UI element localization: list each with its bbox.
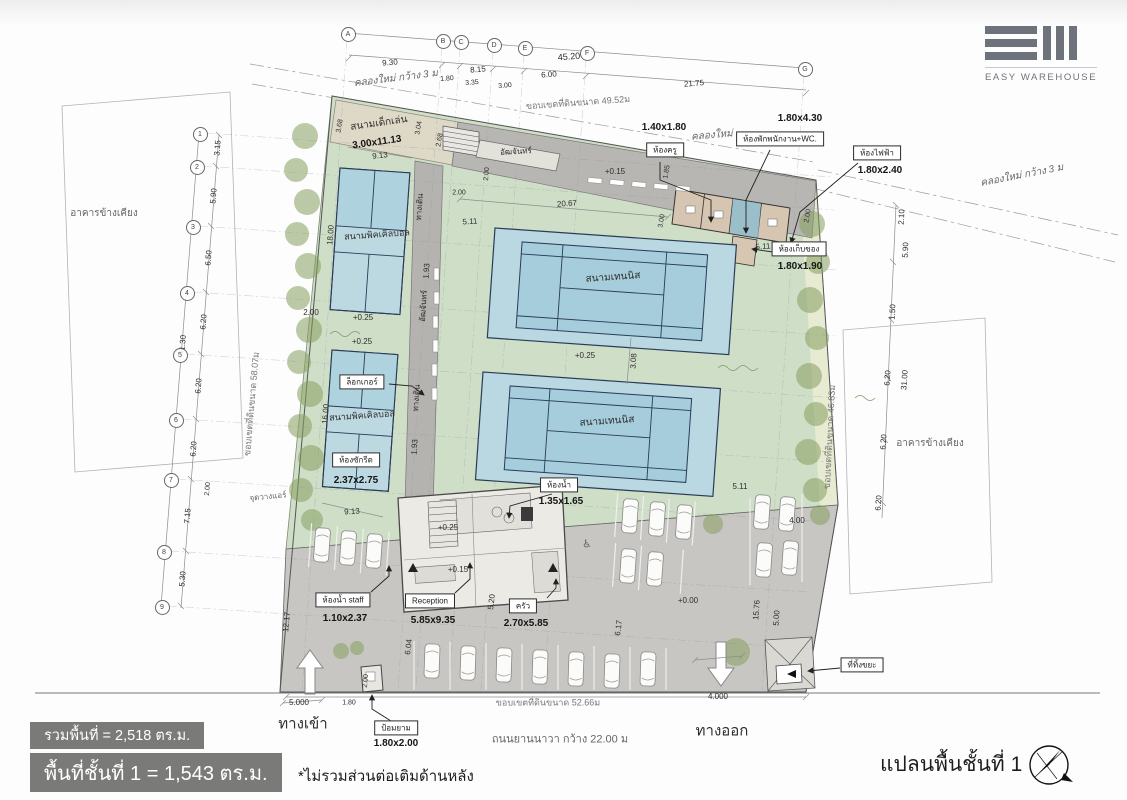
callout-trash_area: ที่ทิ้งขยะ — [841, 657, 884, 672]
label-dimensions-left-7: 5.30 — [178, 571, 187, 587]
label-dimensions-court-7: 2.00 — [303, 309, 319, 317]
label-site-grandstand: อัฒจันทร์ — [500, 147, 532, 157]
grid-bubble-col-1: B — [436, 34, 451, 49]
north-arrow-icon — [1023, 738, 1079, 794]
label-dimensions-parking-7: 4.000 — [708, 693, 728, 701]
label-dimensions-top_sub-2: 3.00 — [498, 82, 512, 90]
callout-electrical_room: ห้องไฟฟ้า — [853, 145, 901, 160]
label-dimensions-court-2: 3.08 — [629, 353, 638, 369]
label-callouts-toilet-size: 1.35x1.65 — [539, 497, 584, 507]
easy-warehouse-logo: EASY WAREHOUSE — [985, 26, 1097, 83]
label-site-neighbor_left: อาคารข้างเคียง — [70, 209, 137, 219]
label-dimensions-top_overall: 45.20 — [557, 52, 580, 63]
callout-teacher_room: ห้องครู — [646, 142, 684, 157]
label-levels-p25: +0.25 — [353, 314, 373, 322]
label-dimensions-right_overall: 31.00 — [900, 370, 909, 391]
label-dimensions-court-7: 2.00 — [483, 167, 491, 181]
label-dimensions-parking-5: 5.00 — [772, 610, 781, 626]
grid-bubble-row-7: 8 — [157, 545, 172, 560]
label-callouts-electrical_room-size: 1.80x2.40 — [858, 166, 903, 176]
label-dimensions-court-6: 16.00 — [321, 404, 330, 425]
label-dimensions-left-3: 6.20 — [199, 314, 208, 330]
label-dimensions-parking-4: 15.76 — [752, 600, 761, 621]
site-plan-drawing — [0, 0, 1127, 800]
label-dimensions-court-7: 2.00 — [452, 190, 466, 197]
label-callouts-kitchen-size: 2.70x5.85 — [504, 619, 549, 629]
grid-bubble-row-1: 2 — [190, 160, 205, 175]
grid-bubble-col-4: E — [518, 41, 533, 56]
label-dimensions-parking-9: 2.00 — [204, 482, 212, 496]
callout-storage_room: ห้องเก็บของ — [772, 241, 827, 256]
label-dimensions-top-0: 9.30 — [382, 58, 398, 67]
grid-bubble-col-5: F — [580, 46, 595, 61]
exclusion-note: *ไม่รวมส่วนต่อเติมด้านหลัง — [298, 764, 474, 788]
label-levels-p15: +0.15 — [448, 566, 468, 574]
label-callouts-reception-size: 5.85x9.35 — [411, 616, 456, 626]
label-dimensions-court-1: 5.11 — [755, 242, 771, 251]
label-callouts-storage_room-size: 1.80x1.90 — [778, 262, 823, 272]
label-callouts-staff_toilet-size: 1.10x2.37 — [323, 614, 368, 624]
label-dimensions-top-3: 21.75 — [684, 79, 705, 89]
callout-laundry_room: ห้องซักรีด — [332, 452, 380, 467]
label-dimensions-top_sub-0: 1.80 — [440, 75, 454, 83]
tennis-court-1 — [487, 228, 736, 355]
floor1-area-badge: พื้นที่ชั้นที่ 1 = 1,543 ตร.ม. — [30, 753, 282, 792]
label-dimensions-right-2: 1.50 — [889, 304, 898, 320]
grid-bubble-col-3: D — [487, 38, 502, 53]
grid-bubble-row-4: 5 — [173, 348, 188, 363]
label-site-entrance: ทางเข้า — [278, 717, 327, 732]
grid-bubble-row-8: 9 — [155, 600, 170, 615]
label-dimensions-court-5: 18.00 — [326, 225, 335, 246]
label-dimensions-right-3: 6.20 — [883, 370, 892, 386]
label-callouts-laundry_room-size: 2.37x2.75 — [334, 476, 379, 486]
pickleball-court-1 — [330, 168, 410, 315]
label-dimensions-court-3: 1.93 — [410, 439, 419, 455]
brand-name: EASY WAREHOUSE — [985, 67, 1097, 83]
grid-bubble-col-6: G — [798, 62, 813, 77]
grid-bubble-row-5: 6 — [169, 413, 184, 428]
label-site-neighbor_right: อาคารข้างเคียง — [896, 439, 963, 449]
label-dimensions-court-4: 9.13 — [372, 151, 388, 161]
callout-reception: Reception — [405, 593, 455, 608]
label-site-boundary_bottom: ขอบเขตที่ดินขนาด 52.66ม — [496, 699, 600, 708]
label-dimensions-right-6: 4.00 — [789, 517, 805, 525]
label-dimensions-right-4: 6.20 — [879, 434, 888, 450]
label-dimensions-left-5: 6.20 — [189, 441, 198, 457]
callout-kitchen: ครัว — [509, 598, 537, 613]
grid-bubble-row-6: 7 — [164, 473, 179, 488]
easy-warehouse-logo-mark-icon — [985, 26, 1097, 60]
callout-staff_toilet: ห้องน้ำ staff — [315, 592, 370, 607]
label-levels-p25: +0.25 — [575, 352, 595, 360]
label-dimensions-court-0: 20.67 — [557, 199, 578, 208]
label-callouts-guard_post-size: 1.80x2.00 — [374, 739, 419, 749]
grid-bubble-row-3: 4 — [180, 286, 195, 301]
label-dimensions-right-1: 5.90 — [902, 242, 911, 258]
label-dimensions-left-4: 6.20 — [194, 378, 203, 394]
grid-bubble-col-0: A — [341, 27, 356, 42]
label-dimensions-court-4: 9.13 — [344, 507, 360, 516]
label-dimensions-right-5: 6.20 — [874, 495, 883, 511]
label-dimensions-left-2: 6.50 — [204, 250, 213, 266]
label-dimensions-top-1: 8.15 — [470, 65, 486, 74]
grid-bubble-col-2: C — [454, 35, 469, 50]
grid-bubble-row-2: 3 — [186, 220, 201, 235]
total-area-badge: รวมพื้นที่ = 2,518 ตร.ม. — [30, 722, 204, 749]
label-dimensions-court-1: 5.11 — [462, 217, 478, 226]
callout-toilet: ห้องน้ำ — [540, 477, 578, 492]
callout-staff_room_wc: ห้องพักพนักงาน+WC. — [736, 131, 824, 146]
label-dimensions-right-0: 2.10 — [898, 209, 907, 225]
label-levels-p00: +0.00 — [678, 597, 698, 605]
trash-structure — [765, 637, 815, 691]
tennis-court-2 — [475, 372, 720, 496]
label-site-road: ถนนยานนาวา กว้าง 22.00 ม — [492, 735, 628, 746]
callout-locker: ล็อกเกอร์ — [339, 374, 384, 389]
label-levels-p15: +0.15 — [605, 168, 625, 176]
label-dimensions-left-0: 3.15 — [213, 140, 222, 156]
label-dimensions-left-6: 7.15 — [183, 508, 192, 524]
label-dimensions-court-3: 1.93 — [422, 263, 431, 279]
label-callouts-teacher_room-size: 1.40x1.80 — [642, 123, 687, 133]
callout-guard_post: ป้อมยาม — [374, 720, 418, 735]
label-callouts-staff_room_wc-size: 1.80x4.30 — [778, 114, 823, 124]
label-dimensions-left-1: 5.90 — [209, 188, 218, 204]
label-levels-p25: +0.25 — [352, 338, 372, 346]
label-dimensions-top_sub-1: 3.35 — [465, 79, 479, 87]
label-site-exit: ทางออก — [696, 724, 749, 739]
label-dimensions-parking-6: 5.000 — [289, 699, 309, 707]
page-title: แปลนพื้นชั้นที่ 1 — [880, 748, 1022, 781]
label-misc-wheelchair: ♿ — [582, 540, 592, 551]
grid-bubble-row-0: 1 — [193, 127, 208, 142]
label-levels-p25: +0.25 — [438, 524, 458, 532]
label-dimensions-parking-9: 2.00 — [362, 674, 370, 688]
label-dimensions-court-1: 5.11 — [733, 483, 748, 491]
label-dimensions-top-2: 6.00 — [541, 70, 557, 79]
floor-plan-page: EASY WAREHOUSE รวมพื้นที่ = 2,518 ตร.ม. … — [0, 0, 1127, 800]
label-dimensions-parking-8: 1.80 — [342, 700, 356, 707]
